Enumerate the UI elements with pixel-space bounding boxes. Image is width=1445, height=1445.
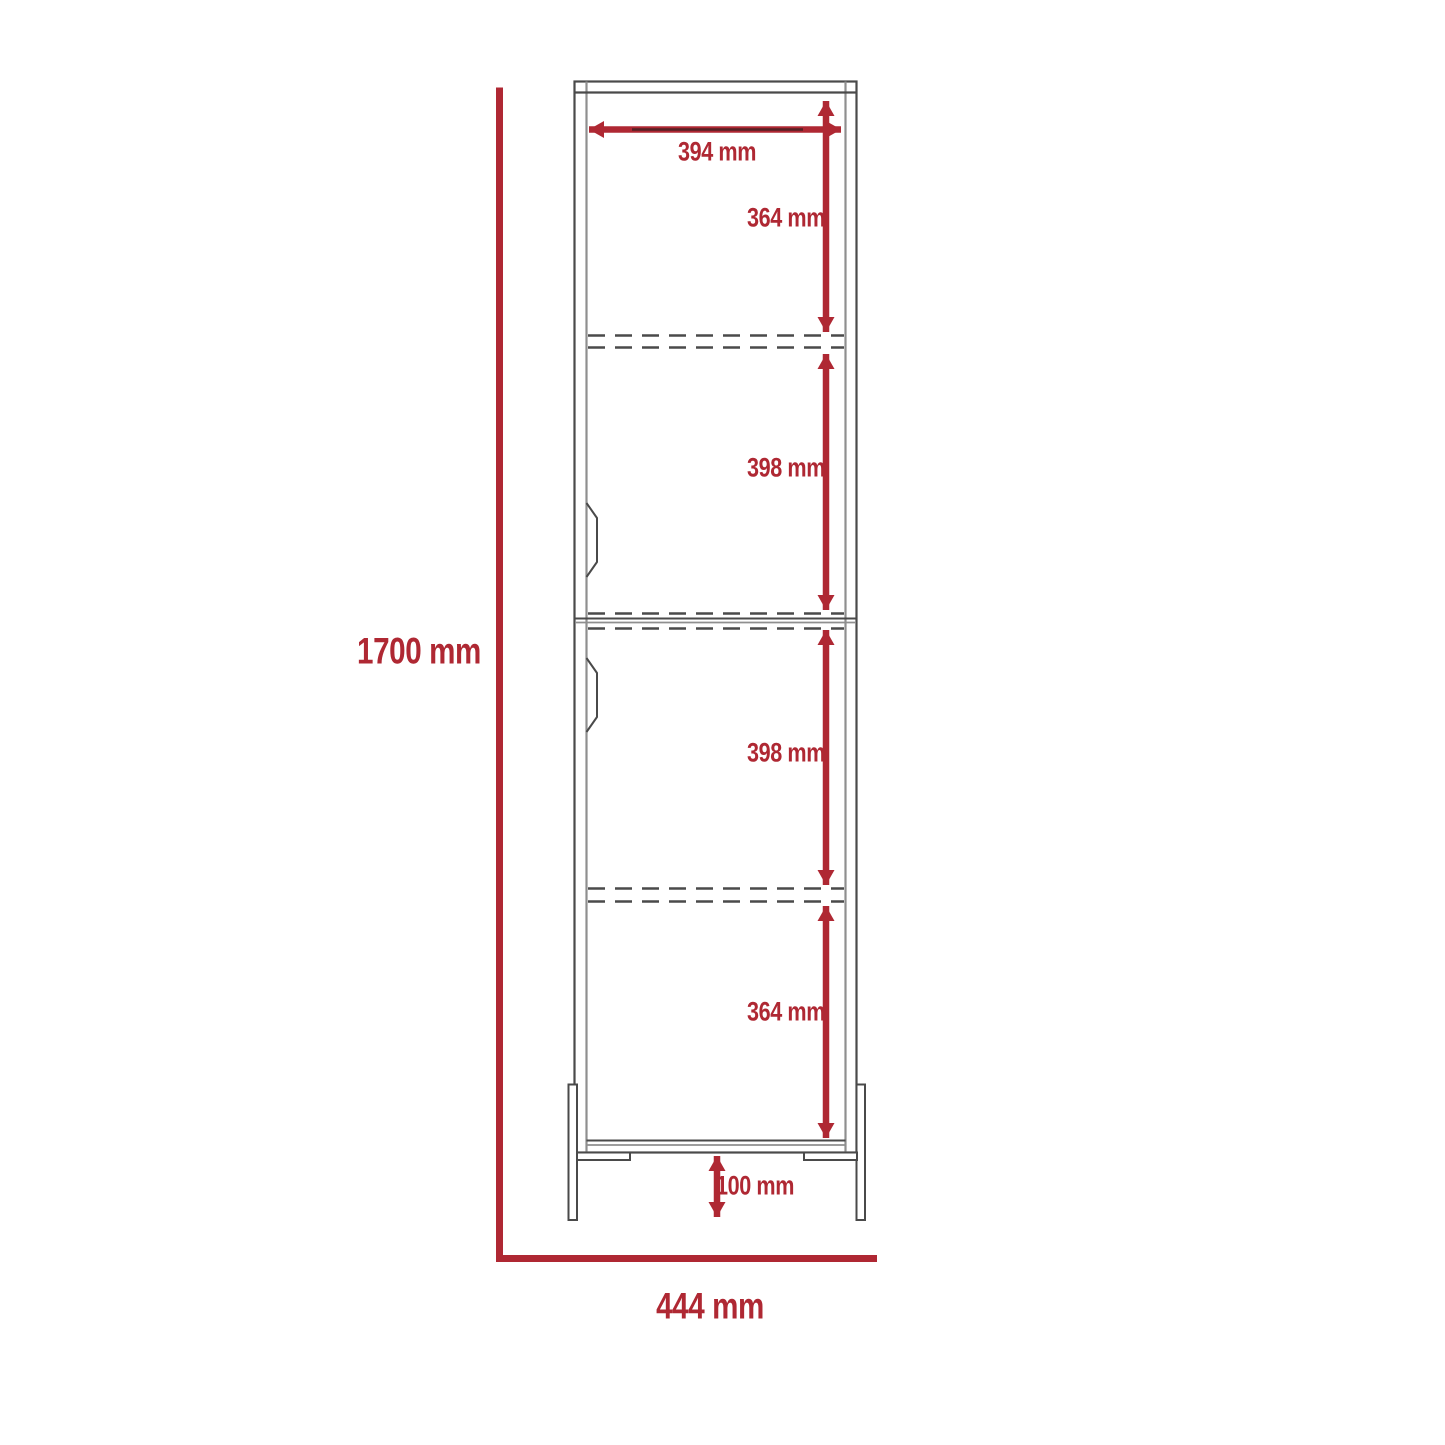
dim-label-upper-middle-section: 398 mm <box>747 455 825 482</box>
dim-label-overall-height: 1700 mm <box>357 633 481 670</box>
dim-label-lower-middle-section: 398 mm <box>747 740 825 767</box>
leg-left <box>569 1085 578 1221</box>
foot-rail-left <box>577 1153 630 1161</box>
dim-label-top-section: 364 mm <box>747 205 825 232</box>
dim-label-bottom-section: 364 mm <box>747 999 825 1026</box>
foot-rail-right <box>804 1153 857 1161</box>
dimension-diagram: 394 mm 364 mm 398 mm 398 mm 364 mm 100 m… <box>0 0 1445 1445</box>
dim-label-overall-width: 444 mm <box>656 1288 764 1325</box>
dim-label-interior-width: 394 mm <box>678 139 756 166</box>
dim-label-foot-clearance: 100 mm <box>716 1173 794 1200</box>
cabinet-line-drawing <box>0 0 1445 1445</box>
cabinet-outline <box>575 82 857 1153</box>
